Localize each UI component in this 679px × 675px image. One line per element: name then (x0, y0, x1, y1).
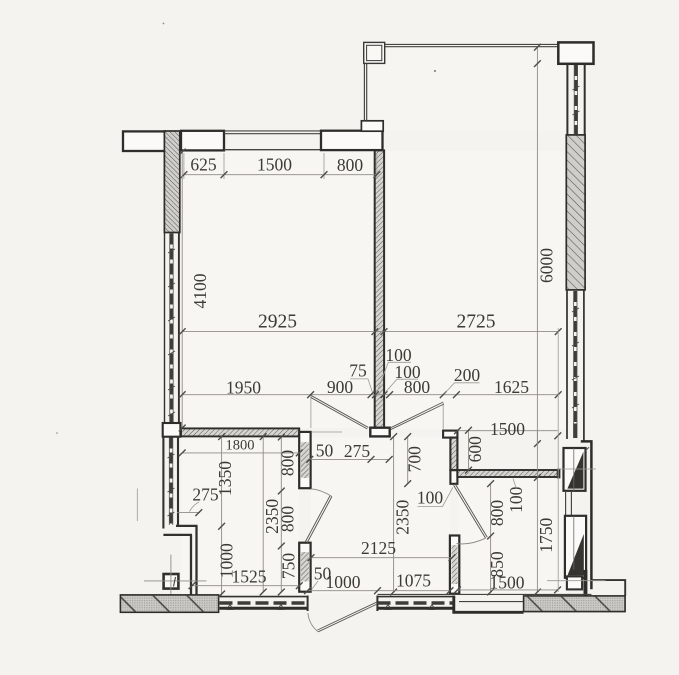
svg-text:100: 100 (417, 487, 444, 507)
svg-text:6000: 6000 (537, 248, 557, 283)
svg-text:800: 800 (278, 450, 298, 477)
svg-text:1500: 1500 (490, 572, 525, 592)
svg-text:1625: 1625 (494, 377, 529, 397)
svg-text:625: 625 (190, 154, 217, 174)
svg-text:1800: 1800 (226, 437, 255, 453)
svg-text:2925: 2925 (258, 311, 297, 332)
svg-text:75: 75 (349, 361, 367, 381)
svg-text:800: 800 (487, 500, 507, 527)
svg-text:2350: 2350 (393, 500, 413, 535)
svg-text:800: 800 (278, 506, 298, 533)
svg-text:600: 600 (465, 436, 485, 463)
svg-text:4100: 4100 (190, 273, 210, 308)
svg-text:1950: 1950 (226, 378, 261, 398)
svg-text:2725: 2725 (457, 311, 496, 332)
svg-text:275: 275 (344, 441, 371, 461)
svg-text:1525: 1525 (232, 567, 267, 587)
svg-text:1500: 1500 (490, 419, 525, 439)
svg-text:100: 100 (394, 362, 421, 382)
svg-text:1000: 1000 (326, 572, 361, 592)
svg-text:2125: 2125 (361, 538, 396, 558)
svg-text:1075: 1075 (396, 571, 431, 591)
svg-text:800: 800 (337, 155, 364, 175)
svg-text:275: 275 (192, 484, 219, 504)
svg-text:50: 50 (316, 440, 334, 460)
svg-text:700: 700 (405, 446, 425, 473)
svg-text:1500: 1500 (257, 154, 292, 174)
svg-text:200: 200 (454, 365, 481, 385)
svg-text:1750: 1750 (536, 518, 556, 553)
svg-text:750: 750 (279, 553, 299, 580)
svg-text:100: 100 (506, 486, 526, 513)
